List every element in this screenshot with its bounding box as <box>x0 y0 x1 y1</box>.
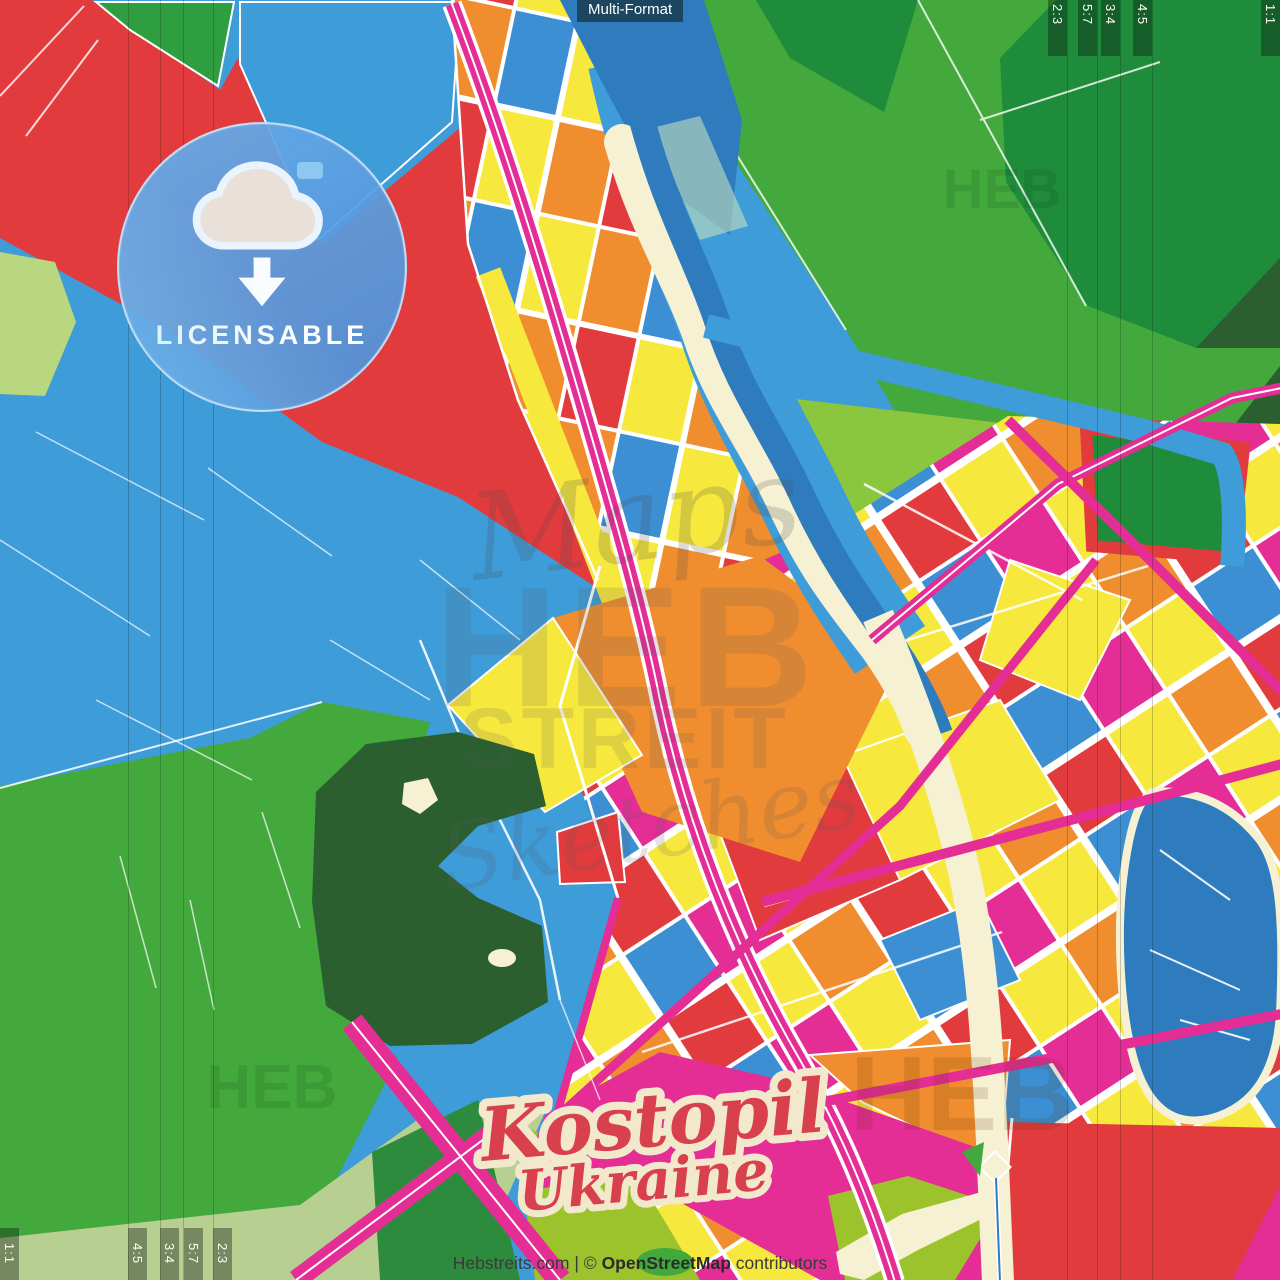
crop-guide-line <box>128 0 129 1280</box>
watermark-corner-bl: HEB <box>207 1053 338 1122</box>
map-poster: Maps HEB STREIT Sketches HEB HEB HEB Kos… <box>0 0 1280 1280</box>
attribution-copyright: © <box>584 1253 597 1273</box>
crop-guide-line <box>1120 0 1121 1280</box>
crop-guide-line <box>1067 0 1068 1280</box>
format-tag: Multi-Format <box>577 0 683 22</box>
badge-deco-square <box>297 162 323 179</box>
crop-ratio-strip: 2:3 <box>1048 0 1067 56</box>
attribution-suffix: contributors <box>736 1253 827 1273</box>
attribution-osm-link[interactable]: OpenStreetMap <box>602 1253 731 1273</box>
cloud-download-icon <box>178 158 346 310</box>
watermark-corner-tr: HEB <box>943 157 1061 220</box>
crop-ratio-strip: 5:7 <box>1078 0 1097 56</box>
attribution-bar: Hebstreits.com | © OpenStreetMap contrib… <box>0 1253 1280 1274</box>
watermark-corner-br: HEB <box>850 1035 1074 1153</box>
crop-ratio-strip: 4:5 <box>1133 0 1152 56</box>
crop-ratio-label: 3:4 <box>1103 4 1118 25</box>
licensable-badge[interactable]: LICENSABLE <box>117 122 407 412</box>
crop-ratio-strip: 1:1 <box>1261 0 1280 56</box>
attribution-separator: | <box>574 1253 579 1273</box>
crop-ratio-strip: 3:4 <box>1101 0 1120 56</box>
crop-guide-line <box>1097 0 1098 1280</box>
crop-ratio-label: 1:1 <box>1263 4 1278 25</box>
lake-east <box>1120 791 1280 1120</box>
attribution-site[interactable]: Hebstreits.com <box>453 1253 570 1273</box>
crop-guide-line <box>1152 0 1153 1280</box>
badge-label: LICENSABLE <box>156 320 369 351</box>
crop-ratio-label: 2:3 <box>1050 4 1065 25</box>
crop-ratio-label: 4:5 <box>1135 4 1150 25</box>
crop-ratio-label: 5:7 <box>1080 4 1095 25</box>
